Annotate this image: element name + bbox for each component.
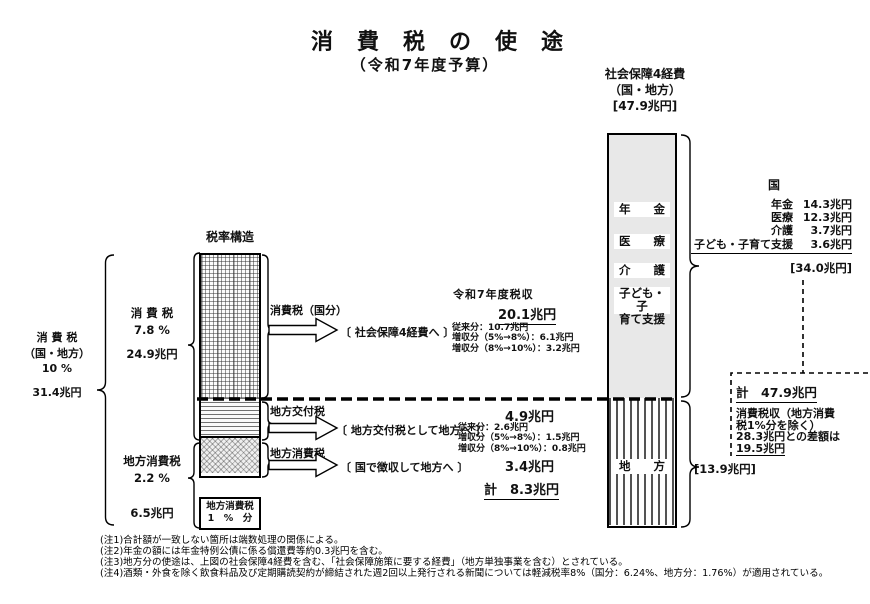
local-consumption-segment bbox=[201, 438, 259, 473]
bar-label-children: 子ども・子 育て支援 bbox=[614, 287, 670, 314]
outer-tax-scope: （国・地方） bbox=[14, 346, 100, 362]
breakdown-line: 増収分（8%→10%）：0.8兆円 bbox=[458, 444, 586, 454]
revenue-kofu-breakdown: 従来分：2.6兆円 増収分（5%→8%）：1.5兆円 増収分（8%→10%）：0… bbox=[458, 423, 586, 454]
footnote-2: (注2)年金の額には年金特例公債に係る償還費等約0.3兆円を含む。 bbox=[100, 546, 852, 557]
national-tax-label: 消 費 税 7.8 % bbox=[110, 305, 194, 339]
kuni-subtotal: [34.0兆円] bbox=[691, 260, 852, 276]
breakdown-line: 従来分：2.6兆円 bbox=[458, 423, 586, 433]
footnote-3: (注3)地方分の使途は、上図の社会保障4経費を含む、「社会保障施策に要する経費」… bbox=[100, 557, 852, 568]
grand-total-note: 消費税収（地方消費 税1%分を除く） 28.3兆円との差額は 19.5兆円 bbox=[736, 408, 840, 456]
revenue-national-breakdown: 従来分：10.7兆円 増収分（5%→8%）：6.1兆円 増収分（8%→10%）：… bbox=[452, 323, 580, 354]
grand-total: 計 47.9兆円 bbox=[736, 382, 817, 403]
bar-label-nursing: 介 護 bbox=[614, 263, 670, 278]
flow2-label: 地方交付税 bbox=[270, 403, 325, 419]
footnote-1: (注1)合計額が一致しない箇所は端数処理の関係による。 bbox=[100, 535, 852, 546]
table-row: 子ども・子育て支援 3.6兆円 bbox=[660, 238, 852, 251]
national-tax-amount: 24.9兆円 bbox=[110, 346, 194, 362]
flow3-destination: 〔 国で徴収して地方へ 〕 bbox=[340, 459, 468, 475]
brace-national-right bbox=[262, 255, 274, 398]
one-percent-line2: 1 % 分 bbox=[201, 513, 259, 525]
national-tax-rate: 7.8 % bbox=[110, 322, 194, 339]
outer-tax-rate: 10 % bbox=[14, 361, 100, 377]
social-security-bar: 年 金 医 療 介 護 子ども・子 育て支援 地 方 bbox=[607, 133, 677, 528]
chihou-amount: [13.9兆円] bbox=[694, 461, 756, 477]
footnotes: (注1)合計額が一致しない箇所は端数処理の関係による。 (注2)年金の額には年金… bbox=[100, 535, 852, 579]
tax-structure-heading: 税率構造 bbox=[194, 228, 266, 245]
kuni-breakdown-heading: 国 bbox=[768, 176, 780, 193]
outer-tax-amount: 31.4兆円 bbox=[14, 384, 100, 400]
revenue-heading: 令和7年度税収 bbox=[453, 286, 534, 302]
kuni-segment: 年 金 医 療 介 護 子ども・子 育て支援 bbox=[609, 135, 675, 398]
row-value: 14.3兆円 bbox=[793, 198, 852, 211]
kuni-breakdown-table: 年金 14.3兆円 医療 12.3兆円 介護 3.7兆円 子ども・子育て支援 3… bbox=[660, 198, 852, 251]
revenue-national-total: 20.1兆円 bbox=[498, 304, 556, 325]
table-row: 年金 14.3兆円 bbox=[660, 198, 852, 211]
outer-tax-name: 消 費 税 bbox=[14, 330, 100, 346]
flow1-label: 消費税（国分） bbox=[270, 302, 347, 318]
flow2-arrow bbox=[269, 417, 337, 440]
local-tax-amount: 6.5兆円 bbox=[108, 505, 196, 521]
local-tax-label: 地方消費税 2.2 % bbox=[108, 453, 196, 487]
chihou-segment: 地 方 bbox=[609, 398, 675, 525]
grand-total-note-line4: 19.5兆円 bbox=[736, 443, 840, 457]
table-row: 医療 12.3兆円 bbox=[660, 211, 852, 224]
breakdown-line: 増収分（8%→10%）：3.2兆円 bbox=[452, 344, 580, 354]
breakdown-line: 増収分（5%→8%）：6.1兆円 bbox=[452, 333, 580, 343]
one-percent-box: 地方消費税 1 % 分 bbox=[199, 497, 261, 530]
local-tax-name: 地方消費税 bbox=[108, 453, 196, 470]
bar-label-local: 地 方 bbox=[614, 459, 670, 474]
kuni-subtotal-rule bbox=[691, 253, 852, 254]
row-label: 医療 bbox=[660, 211, 793, 224]
local-allocation-segment bbox=[201, 398, 259, 438]
row-label: 年金 bbox=[660, 198, 793, 211]
row-label: 介護 bbox=[660, 224, 793, 237]
ss-header-line1: 社会保障4経費 bbox=[575, 66, 715, 82]
local-tax-rate: 2.2 % bbox=[108, 470, 196, 487]
page-title: 消費税の使途 bbox=[180, 24, 694, 56]
row-label: 子ども・子育て支援 bbox=[660, 238, 793, 251]
one-percent-line1: 地方消費税 bbox=[201, 501, 259, 513]
grand-total-note-line1: 消費税収（地方消費 bbox=[736, 408, 840, 420]
breakdown-line: 増収分（5%→8%）：1.5兆円 bbox=[458, 433, 586, 443]
revenue-local-grand-total: 計 8.3兆円 bbox=[484, 479, 559, 500]
breakdown-line: 従来分：10.7兆円 bbox=[452, 323, 580, 333]
revenue-local-total: 3.4兆円 bbox=[505, 456, 554, 475]
row-value: 3.6兆円 bbox=[793, 238, 852, 251]
flow1-destination: 〔 社会保障4経費へ 〕 bbox=[340, 324, 454, 340]
tax-rate-bar bbox=[199, 253, 261, 478]
ss-header-line3: [47.9兆円] bbox=[575, 98, 715, 114]
flow3-label: 地方消費税 bbox=[270, 445, 325, 461]
bar-label-children-line2: 育て支援 bbox=[614, 313, 670, 326]
national-tax-segment bbox=[201, 255, 259, 398]
consumption-tax-usage-diagram: 消費税の使途 （令和7年度予算） 社会保障4経費 （国・地方） [47.9兆円]… bbox=[0, 0, 870, 604]
row-value: 3.7兆円 bbox=[793, 224, 852, 237]
outer-tax-label: 消 費 税 （国・地方） 10 % bbox=[14, 330, 100, 377]
footnote-4: (注4)酒類・外食を除く飲食料品及び定期購読契約が締結された週2回以上発行される… bbox=[100, 568, 852, 579]
row-value: 12.3兆円 bbox=[793, 211, 852, 224]
flow1-arrow bbox=[269, 319, 337, 342]
ss-header-line2: （国・地方） bbox=[575, 82, 715, 98]
bar-label-children-line1: 子ども・子 bbox=[614, 287, 670, 313]
social-security-header: 社会保障4経費 （国・地方） [47.9兆円] bbox=[575, 66, 715, 114]
national-tax-name: 消 費 税 bbox=[110, 305, 194, 322]
table-row: 介護 3.7兆円 bbox=[660, 224, 852, 237]
